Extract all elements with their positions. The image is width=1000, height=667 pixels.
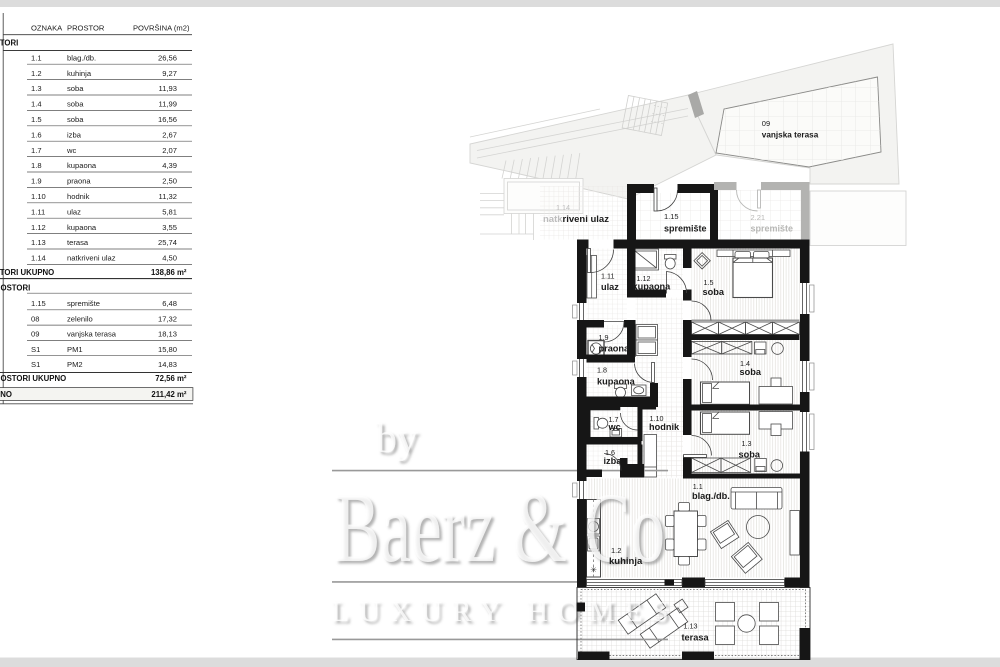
svg-text:2,50: 2,50: [162, 177, 177, 186]
svg-text:ulaz: ulaz: [67, 207, 81, 216]
svg-text:1.5: 1.5: [704, 278, 714, 287]
svg-text:1.15: 1.15: [31, 299, 46, 308]
svg-text:kupaona: kupaona: [633, 281, 672, 291]
svg-text:PM1: PM1: [67, 345, 83, 354]
svg-text:zelenilo: zelenilo: [67, 314, 93, 323]
svg-text:2,07: 2,07: [162, 146, 177, 155]
svg-text:OZNAKA: OZNAKA: [31, 23, 63, 32]
svg-text:OSTORI: OSTORI: [1, 284, 31, 293]
svg-text:1.11: 1.11: [601, 272, 614, 281]
svg-text:soba: soba: [703, 287, 725, 297]
svg-text:4,50: 4,50: [162, 254, 177, 263]
svg-text:soba: soba: [67, 84, 84, 93]
svg-text:hodnik: hodnik: [67, 192, 90, 201]
svg-text:OSTORI UKUPNO: OSTORI UKUPNO: [1, 374, 67, 383]
svg-text:blag./db.: blag./db.: [692, 491, 730, 501]
svg-text:11,93: 11,93: [159, 84, 177, 93]
svg-text:spremište: spremište: [67, 299, 100, 308]
svg-text:kuhinja: kuhinja: [609, 556, 643, 567]
svg-text:natkriveni ulaz: natkriveni ulaz: [67, 254, 116, 263]
svg-text:PROSTORI: PROSTORI: [0, 39, 18, 48]
svg-text:1.14: 1.14: [31, 254, 46, 263]
svg-text:2,67: 2,67: [162, 130, 177, 139]
svg-text:11,32: 11,32: [159, 192, 177, 201]
svg-text:1.12: 1.12: [31, 223, 46, 232]
svg-text:2.21: 2.21: [751, 213, 766, 222]
svg-text:POVRŠINA (m2): POVRŠINA (m2): [133, 23, 190, 32]
svg-text:1.3: 1.3: [742, 439, 752, 448]
svg-text:kupaona: kupaona: [67, 223, 97, 232]
svg-text:PM2: PM2: [67, 360, 83, 369]
svg-text:izba: izba: [67, 130, 82, 139]
svg-text:blag./db.: blag./db.: [67, 53, 96, 62]
svg-text:09: 09: [762, 119, 770, 128]
svg-text:26,56: 26,56: [158, 53, 177, 62]
svg-text:spremište: spremište: [664, 224, 707, 234]
svg-text:praona: praona: [599, 344, 631, 354]
svg-text:S1: S1: [31, 345, 40, 354]
svg-text:soba: soba: [740, 367, 762, 377]
svg-text:08: 08: [31, 314, 39, 323]
svg-text:17,32: 17,32: [158, 314, 177, 323]
svg-text:1.14: 1.14: [556, 203, 570, 212]
svg-text:hodnik: hodnik: [649, 422, 680, 432]
svg-text:soba: soba: [67, 100, 84, 109]
svg-text:UKUPNO: UKUPNO: [0, 390, 12, 399]
svg-text:izba: izba: [604, 456, 623, 466]
svg-text:211,42 m²: 211,42 m²: [151, 390, 187, 399]
svg-text:terasa: terasa: [682, 633, 710, 643]
svg-text:1.6: 1.6: [31, 130, 42, 139]
svg-text:kupaona: kupaona: [67, 161, 97, 170]
svg-text:natk: natk: [543, 214, 563, 225]
svg-text:PROSTORI UKUPNO: PROSTORI UKUPNO: [0, 268, 54, 277]
svg-text:4,39: 4,39: [162, 161, 177, 170]
svg-text:25,74: 25,74: [158, 238, 177, 247]
svg-text:09: 09: [31, 330, 39, 339]
svg-text:138,86 m²: 138,86 m²: [151, 268, 187, 277]
svg-text:1.15: 1.15: [664, 212, 679, 221]
svg-text:1.10: 1.10: [31, 192, 46, 201]
svg-text:soba: soba: [67, 115, 84, 124]
svg-text:riveni ulaz: riveni ulaz: [563, 214, 610, 225]
svg-text:wc: wc: [66, 146, 76, 155]
svg-text:5,81: 5,81: [162, 207, 177, 216]
svg-text:1.13: 1.13: [684, 622, 698, 631]
svg-text:1.4: 1.4: [31, 100, 42, 109]
svg-text:1.11: 1.11: [31, 207, 45, 216]
svg-text:S1: S1: [31, 360, 40, 369]
svg-text:1.8: 1.8: [31, 161, 42, 170]
svg-text:spremište: spremište: [751, 224, 794, 234]
svg-text:16,56: 16,56: [158, 115, 177, 124]
svg-text:1.1: 1.1: [31, 53, 42, 62]
svg-text:praona: praona: [67, 177, 91, 186]
svg-text:by: by: [376, 416, 418, 462]
svg-text:1.3: 1.3: [31, 84, 42, 93]
svg-text:72,56 m²: 72,56 m²: [155, 374, 187, 383]
svg-text:1.8: 1.8: [597, 366, 607, 375]
svg-text:terasa: terasa: [67, 238, 89, 247]
svg-text:1.2: 1.2: [31, 69, 42, 78]
svg-text:kupaona: kupaona: [597, 377, 636, 387]
svg-text:ulaz: ulaz: [601, 282, 619, 292]
svg-text:1.7: 1.7: [31, 146, 42, 155]
svg-text:1.9: 1.9: [31, 177, 42, 186]
svg-text:14,83: 14,83: [158, 360, 177, 369]
svg-text:soba: soba: [739, 450, 761, 460]
svg-text:vanjska terasa: vanjska terasa: [67, 330, 117, 339]
svg-text:PROSTOR: PROSTOR: [67, 23, 105, 32]
svg-text:kuhinja: kuhinja: [67, 69, 92, 78]
svg-text:1.13: 1.13: [31, 238, 46, 247]
svg-text:6,48: 6,48: [162, 299, 177, 308]
svg-text:9,27: 9,27: [162, 69, 177, 78]
svg-text:wc: wc: [608, 422, 621, 432]
svg-text:1.9: 1.9: [599, 333, 609, 342]
svg-text:vanjska terasa: vanjska terasa: [762, 131, 819, 140]
svg-text:1.5: 1.5: [31, 115, 42, 124]
svg-text:1.1: 1.1: [693, 482, 703, 491]
svg-text:11,99: 11,99: [159, 100, 177, 109]
svg-text:18,13: 18,13: [158, 330, 177, 339]
svg-text:3,55: 3,55: [162, 223, 177, 232]
svg-text:15,80: 15,80: [158, 345, 177, 354]
